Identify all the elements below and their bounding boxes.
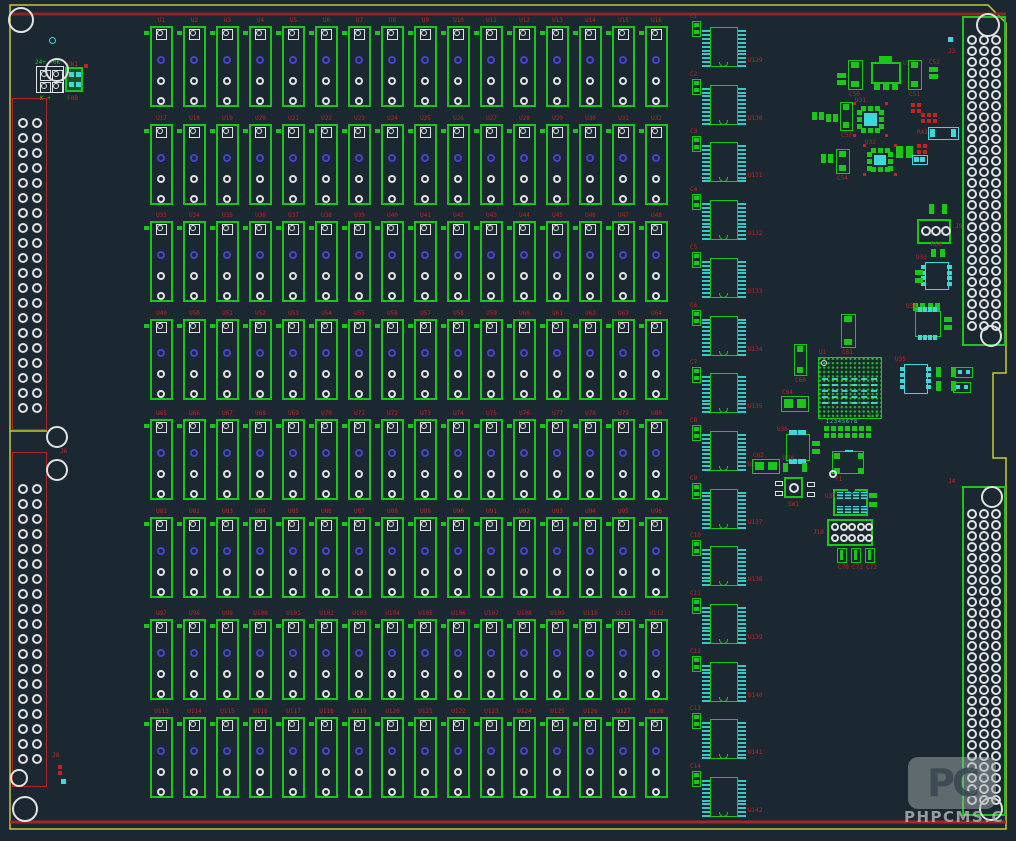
right-top-connector[interactable]	[962, 16, 1006, 346]
relay-footprint[interactable]: U39	[348, 221, 371, 302]
cap-pad	[694, 722, 699, 726]
relay-pad-blue	[520, 56, 528, 64]
relay-pad-coil	[552, 720, 563, 731]
relay-footprint[interactable]: U119	[348, 717, 371, 798]
relay-designator: U38	[310, 212, 343, 220]
relay-footprint[interactable]: U60	[513, 319, 536, 400]
chip-resistor[interactable]: R42	[928, 127, 959, 140]
relay-footprint[interactable]: U105	[414, 619, 437, 700]
connector-pad	[967, 685, 977, 695]
relay-footprint[interactable]: U102	[315, 619, 338, 700]
bypass-cap[interactable]	[692, 713, 701, 729]
relay-footprint[interactable]: U16	[645, 26, 668, 107]
relay-designator: U44	[508, 212, 541, 220]
ic-pin	[738, 800, 746, 802]
relay-footprint[interactable]: U36	[249, 221, 272, 302]
relay-footprint[interactable]: U115	[216, 717, 239, 798]
relay-footprint[interactable]: U90	[447, 517, 470, 598]
relay-designator: U120	[376, 708, 409, 716]
cap-footprint[interactable]: C60	[794, 344, 807, 376]
relay-footprint[interactable]: U1	[150, 26, 173, 107]
cap-pad	[694, 492, 699, 496]
relay-footprint[interactable]: U51	[216, 319, 239, 400]
shape	[888, 159, 893, 164]
relay-footprint[interactable]: U46	[579, 221, 602, 302]
relay-pad	[190, 470, 198, 478]
relay-pad	[619, 292, 627, 300]
cap-footprint[interactable]	[955, 367, 973, 378]
cap-footprint[interactable]: C71	[851, 548, 861, 563]
relay-footprint[interactable]: U23	[348, 124, 371, 205]
ic-footprint[interactable]: C5U133	[694, 256, 750, 302]
cap-footprint[interactable]	[915, 270, 923, 283]
ic-pin	[738, 573, 746, 575]
relay-footprint[interactable]: U79	[612, 419, 635, 500]
pad-hole	[157, 225, 163, 231]
connector-pad	[991, 542, 1001, 552]
relay-footprint[interactable]: U82	[183, 517, 206, 598]
relay-footprint[interactable]: U81	[150, 517, 173, 598]
bypass-cap[interactable]	[692, 656, 701, 672]
relay-footprint[interactable]: U72	[381, 419, 404, 500]
relay-footprint[interactable]: U70	[315, 419, 338, 500]
ic-body	[710, 719, 738, 759]
soic8-footprint[interactable]: U35	[904, 364, 928, 394]
relay-footprint[interactable]: U75	[480, 419, 503, 500]
relay-footprint[interactable]: U116	[249, 717, 272, 798]
pad-hole	[619, 521, 625, 527]
relay-footprint[interactable]: U32	[645, 124, 668, 205]
crystal-footprint[interactable]: Y1	[832, 451, 864, 474]
ic-footprint[interactable]: C11U139	[694, 602, 750, 648]
relay-footprint[interactable]: U83	[216, 517, 239, 598]
relay-footprint[interactable]: U34	[183, 221, 206, 302]
relay-footprint[interactable]: U107	[480, 619, 503, 700]
connector-pad	[991, 520, 1001, 530]
ic-footprint[interactable]: C9U137	[694, 487, 750, 533]
bypass-cap[interactable]	[692, 425, 701, 441]
relay-footprint[interactable]: U27	[480, 124, 503, 205]
relay-pad-coil	[156, 720, 167, 731]
relay-footprint[interactable]: U106	[447, 619, 470, 700]
cap-footprint[interactable]	[812, 441, 820, 454]
bga-routing	[822, 378, 877, 380]
relay-footprint[interactable]: U40	[381, 221, 404, 302]
ic-footprint[interactable]: C8U136	[694, 429, 750, 475]
ic-footprint[interactable]: C10U138	[694, 544, 750, 590]
relay-designator: U94	[574, 508, 607, 516]
relay-footprint[interactable]: U29	[546, 124, 569, 205]
ic-footprint[interactable]: C14U142	[694, 775, 750, 821]
regulator-footprint[interactable]: U30	[871, 56, 901, 90]
ic-footprint[interactable]: C6U134	[694, 314, 750, 360]
relay-footprint[interactable]: U97	[150, 619, 173, 700]
pad-hole	[487, 225, 493, 231]
relay-footprint[interactable]: U48	[645, 221, 668, 302]
relay-pad	[652, 97, 660, 105]
connector-pad	[979, 200, 989, 210]
relay-footprint[interactable]: U42	[447, 221, 470, 302]
relay-pad	[256, 670, 264, 678]
relay-footprint[interactable]: U77	[546, 419, 569, 500]
relay-footprint[interactable]: U6	[315, 26, 338, 107]
relay-footprint[interactable]: U74	[447, 419, 470, 500]
relay-footprint[interactable]: U110	[579, 619, 602, 700]
cap-footprint[interactable]: R60	[931, 249, 945, 257]
ic-footprint[interactable]: C2U130	[694, 83, 750, 129]
relay-footprint[interactable]: U93	[546, 517, 569, 598]
relay-footprint[interactable]: U15	[612, 26, 635, 107]
relay-footprint[interactable]: U67	[216, 419, 239, 500]
pin1-mark	[507, 324, 512, 328]
bga-footprint[interactable]: U11.0	[818, 357, 882, 419]
relay-footprint[interactable]: U64	[645, 319, 668, 400]
ic-pin	[702, 338, 710, 340]
relay-footprint[interactable]: U31	[612, 124, 635, 205]
relay-designator: U102	[310, 610, 343, 618]
connector-pad	[967, 211, 977, 221]
relay-footprint[interactable]: U30	[579, 124, 602, 205]
cap-footprint[interactable]	[896, 146, 913, 158]
cap-footprint[interactable]: C50	[848, 60, 863, 90]
ic-pin	[702, 392, 710, 394]
cap-footprint[interactable]	[826, 114, 838, 122]
ic-pin	[702, 280, 710, 282]
relay-footprint[interactable]: U11	[480, 26, 503, 107]
relay-footprint[interactable]: U109	[546, 619, 569, 700]
relay-pad-coil	[486, 224, 497, 235]
relay-footprint[interactable]: U3	[216, 26, 239, 107]
terminal-pad	[931, 226, 941, 236]
pin1-mark	[639, 324, 644, 328]
relay-footprint[interactable]: U13	[546, 26, 569, 107]
ic-pin	[738, 519, 746, 521]
relay-pad-blue	[190, 251, 198, 259]
relay-pad	[421, 292, 429, 300]
bypass-cap[interactable]	[692, 136, 701, 152]
relay-pad	[487, 195, 495, 203]
relay-pad-blue	[223, 747, 231, 755]
ic-pin	[702, 665, 710, 667]
relay-footprint[interactable]: U2	[183, 26, 206, 107]
bga-routing	[822, 384, 877, 386]
pin1-mark	[342, 129, 347, 133]
connector-pad	[979, 586, 989, 596]
cap-footprint[interactable]	[869, 493, 877, 507]
cap-footprint[interactable]	[929, 204, 947, 214]
relay-pad	[520, 470, 528, 478]
cap-footprint[interactable]	[944, 317, 952, 330]
relay-footprint[interactable]: U88	[381, 517, 404, 598]
relay-pad	[256, 390, 264, 398]
cap-footprint[interactable]	[812, 112, 824, 120]
cap-footprint[interactable]: C72	[865, 548, 875, 563]
relay-designator: U100	[244, 610, 277, 618]
relay-footprint[interactable]: U127	[612, 717, 635, 798]
ic-footprint[interactable]: C7U135	[694, 371, 750, 417]
relay-footprint[interactable]: U92	[513, 517, 536, 598]
relay-designator: U13	[541, 17, 574, 25]
relay-footprint[interactable]: U63	[612, 319, 635, 400]
bypass-cap[interactable]	[692, 194, 701, 210]
ic-footprint[interactable]: C1U129	[694, 25, 750, 71]
qfn-footprint[interactable]: U31	[857, 106, 884, 133]
relay-footprint[interactable]: U95	[612, 517, 635, 598]
cap-footprint[interactable]: C52	[929, 67, 938, 79]
bypass-cap[interactable]	[692, 367, 701, 383]
connector-pad	[18, 148, 28, 158]
connector-pad	[32, 634, 42, 644]
relay-footprint[interactable]: U5	[282, 26, 305, 107]
pin1-mark	[210, 226, 215, 230]
relay-footprint[interactable]: U80	[645, 419, 668, 500]
pcb-canvas[interactable]: 24+ -0K K + GN1 F0B J6 J8 J3 J4 PC PHPCM…	[0, 0, 1016, 841]
relay-footprint[interactable]: U10	[447, 26, 470, 107]
pin-header[interactable]: J10	[827, 519, 873, 546]
relay-footprint[interactable]: U86	[315, 517, 338, 598]
relay-footprint[interactable]: U87	[348, 517, 371, 598]
relay-footprint[interactable]: U14	[579, 26, 602, 107]
relay-footprint[interactable]: U7	[348, 26, 371, 107]
relay-footprint[interactable]: U24	[381, 124, 404, 205]
relay-designator: U110	[574, 610, 607, 618]
relay-pad	[388, 670, 396, 678]
relay-pad-coil	[519, 622, 530, 633]
relay-footprint[interactable]: U84	[249, 517, 272, 598]
relay-footprint[interactable]: U103	[348, 619, 371, 700]
relay-footprint[interactable]: U89	[414, 517, 437, 598]
pin1-mark	[309, 129, 314, 133]
relay-footprint[interactable]: U126	[579, 717, 602, 798]
relay-pad-coil	[651, 422, 662, 433]
relay-footprint[interactable]: U20	[249, 124, 272, 205]
chip-resistor[interactable]	[912, 155, 928, 165]
left-top-connector[interactable]	[12, 98, 47, 430]
relay-footprint[interactable]: U50	[183, 319, 206, 400]
soic8-footprint[interactable]: U33	[925, 262, 949, 290]
ic-pin	[738, 284, 746, 286]
relay-footprint[interactable]: U94	[579, 517, 602, 598]
relay-footprint[interactable]: U22	[315, 124, 338, 205]
relay-pad-coil	[552, 224, 563, 235]
bypass-cap[interactable]	[692, 21, 701, 37]
cap-footprint[interactable]	[953, 382, 971, 393]
button-footprint[interactable]: SW1	[784, 477, 803, 498]
soic8-footprint[interactable]: U34	[915, 311, 941, 337]
relay-pad-blue	[421, 349, 429, 357]
relay-pad-blue	[289, 747, 297, 755]
relay-footprint[interactable]: U4	[249, 26, 272, 107]
left-bottom-connector[interactable]	[12, 452, 47, 787]
cap-footprint[interactable]: C62	[752, 459, 780, 474]
relay-footprint[interactable]: U76	[513, 419, 536, 500]
relay-footprint[interactable]: U45	[546, 221, 569, 302]
test-pads	[58, 765, 64, 777]
relay-footprint[interactable]: U49	[150, 319, 173, 400]
relay-footprint[interactable]: U61	[546, 319, 569, 400]
cap-footprint[interactable]: C53	[840, 102, 853, 131]
relay-footprint[interactable]: U44	[513, 221, 536, 302]
relay-footprint[interactable]: U108	[513, 619, 536, 700]
relay-footprint[interactable]: U117	[282, 717, 305, 798]
pad-hole	[256, 30, 262, 36]
relay-footprint[interactable]: U73	[414, 419, 437, 500]
ic-pin	[702, 788, 710, 790]
relay-footprint[interactable]: U55	[348, 319, 371, 400]
ic-footprint[interactable]: C13U141	[694, 717, 750, 763]
ic-pin	[702, 638, 710, 640]
relay-footprint[interactable]: U99	[216, 619, 239, 700]
ic-footprint[interactable]: C3U131	[694, 140, 750, 186]
relay-footprint[interactable]: U52	[249, 319, 272, 400]
shape	[58, 765, 62, 769]
relay-footprint[interactable]: U118	[315, 717, 338, 798]
pad-hole	[223, 521, 229, 527]
cap-footprint[interactable]	[837, 73, 846, 85]
relay-pad-coil	[453, 29, 464, 40]
relay-footprint[interactable]: U26	[447, 124, 470, 205]
cap-footprint[interactable]: C51	[908, 60, 922, 90]
relay-footprint[interactable]: U100	[249, 619, 272, 700]
connector-pad	[967, 564, 977, 574]
relay-footprint[interactable]: U65	[150, 419, 173, 500]
bypass-cap[interactable]	[692, 310, 701, 326]
pad-hole	[586, 721, 592, 727]
connector-pad	[979, 641, 989, 651]
cap-footprint[interactable]: C64	[781, 396, 809, 412]
relay-footprint[interactable]: U112	[645, 619, 668, 700]
relay-pad-blue	[157, 449, 165, 457]
ic-pin	[738, 288, 746, 290]
cap-footprint[interactable]: R50	[783, 463, 807, 472]
relay-pad	[553, 588, 561, 596]
cap-footprint[interactable]	[821, 154, 833, 163]
shape	[775, 491, 783, 496]
relay-footprint[interactable]: U43	[480, 221, 503, 302]
bypass-cap[interactable]	[692, 771, 701, 787]
connector-pad	[967, 79, 977, 89]
relay-footprint[interactable]: U17	[150, 124, 173, 205]
ic-footprint[interactable]: C4U132	[694, 198, 750, 244]
relay-footprint[interactable]: U111	[612, 619, 635, 700]
relay-footprint[interactable]: U124	[513, 717, 536, 798]
relay-footprint[interactable]: U122	[447, 717, 470, 798]
bypass-cap[interactable]	[692, 79, 701, 95]
relay-footprint[interactable]: U58	[447, 319, 470, 400]
ic-pin	[702, 630, 710, 632]
shape	[911, 81, 918, 87]
part-designator: J10	[813, 529, 824, 536]
relay-footprint[interactable]: U123	[480, 717, 503, 798]
relay-footprint[interactable]: U62	[579, 319, 602, 400]
relay-footprint[interactable]: U28	[513, 124, 536, 205]
ic-pin	[738, 103, 746, 105]
relay-footprint[interactable]: U120	[381, 717, 404, 798]
relay-footprint[interactable]: U21	[282, 124, 305, 205]
relay-footprint[interactable]: U71	[348, 419, 371, 500]
shape	[867, 159, 872, 164]
relay-footprint[interactable]: U37	[282, 221, 305, 302]
pad-array[interactable]: 12345678	[824, 426, 874, 440]
connector-pad	[979, 685, 989, 695]
relay-pad-coil	[420, 224, 431, 235]
relay-pad-coil	[585, 224, 596, 235]
shape	[951, 129, 956, 137]
relay-pad	[586, 588, 594, 596]
cap-footprint[interactable]: C61	[841, 314, 856, 348]
relay-footprint[interactable]: U104	[381, 619, 404, 700]
relay-footprint[interactable]: U9	[414, 26, 437, 107]
pin1-mark	[243, 624, 248, 628]
ic-pin	[738, 434, 746, 436]
bypass-cap[interactable]	[692, 483, 701, 499]
pin1-mark	[441, 324, 446, 328]
ic-designator: U140	[748, 692, 762, 699]
relay-footprint[interactable]: U53	[282, 319, 305, 400]
connector-pad	[18, 253, 28, 263]
relay-footprint[interactable]: U85	[282, 517, 305, 598]
relay-footprint[interactable]: U18	[183, 124, 206, 205]
relay-pad-blue	[454, 449, 462, 457]
ic-footprint[interactable]: C12U140	[694, 660, 750, 706]
relay-footprint[interactable]: U128	[645, 717, 668, 798]
relay-footprint[interactable]: U33	[150, 221, 173, 302]
relay-footprint[interactable]: U114	[183, 717, 206, 798]
relay-footprint[interactable]: U12	[513, 26, 536, 107]
relay-pad-coil	[156, 29, 167, 40]
relay-footprint[interactable]: U121	[414, 717, 437, 798]
relay-footprint[interactable]: U56	[381, 319, 404, 400]
relay-footprint[interactable]: U35	[216, 221, 239, 302]
relay-pad-coil	[387, 127, 398, 138]
relay-footprint[interactable]: U47	[612, 221, 635, 302]
part-designator: C71	[852, 564, 863, 571]
relay-footprint[interactable]: U54	[315, 319, 338, 400]
qfn-footprint[interactable]: U32	[867, 148, 893, 172]
relay-footprint[interactable]: U8	[381, 26, 404, 107]
relay-footprint[interactable]: U98	[183, 619, 206, 700]
dip8-socket[interactable]: U37	[833, 489, 868, 516]
relay-footprint[interactable]: U96	[645, 517, 668, 598]
relay-footprint[interactable]: U38	[315, 221, 338, 302]
relay-footprint[interactable]: U125	[546, 717, 569, 798]
cap-footprint[interactable]: C70	[837, 548, 847, 563]
relay-footprint[interactable]: U69	[282, 419, 305, 500]
relay-designator: U10	[442, 17, 475, 25]
bypass-cap[interactable]	[692, 598, 701, 614]
relay-footprint[interactable]: U91	[480, 517, 503, 598]
mounting-hole	[45, 58, 69, 82]
cap-footprint[interactable]: C54	[836, 149, 850, 174]
connector-pad	[967, 310, 977, 320]
bypass-cap[interactable]	[692, 252, 701, 268]
cap-footprint[interactable]	[936, 367, 956, 377]
relay-footprint[interactable]: U25	[414, 124, 437, 205]
relay-footprint[interactable]: U19	[216, 124, 239, 205]
pad-hole	[41, 83, 47, 89]
relay-footprint[interactable]: U66	[183, 419, 206, 500]
relay-footprint[interactable]: U59	[480, 319, 503, 400]
relay-footprint[interactable]: U41	[414, 221, 437, 302]
relay-footprint[interactable]: U101	[282, 619, 305, 700]
relay-pad-blue	[619, 649, 627, 657]
ic-pin	[702, 569, 710, 571]
bypass-cap[interactable]	[692, 540, 701, 556]
relay-footprint[interactable]: U78	[579, 419, 602, 500]
relay-footprint[interactable]: U68	[249, 419, 272, 500]
relay-footprint[interactable]: U113	[150, 717, 173, 798]
relay-footprint[interactable]: U57	[414, 319, 437, 400]
